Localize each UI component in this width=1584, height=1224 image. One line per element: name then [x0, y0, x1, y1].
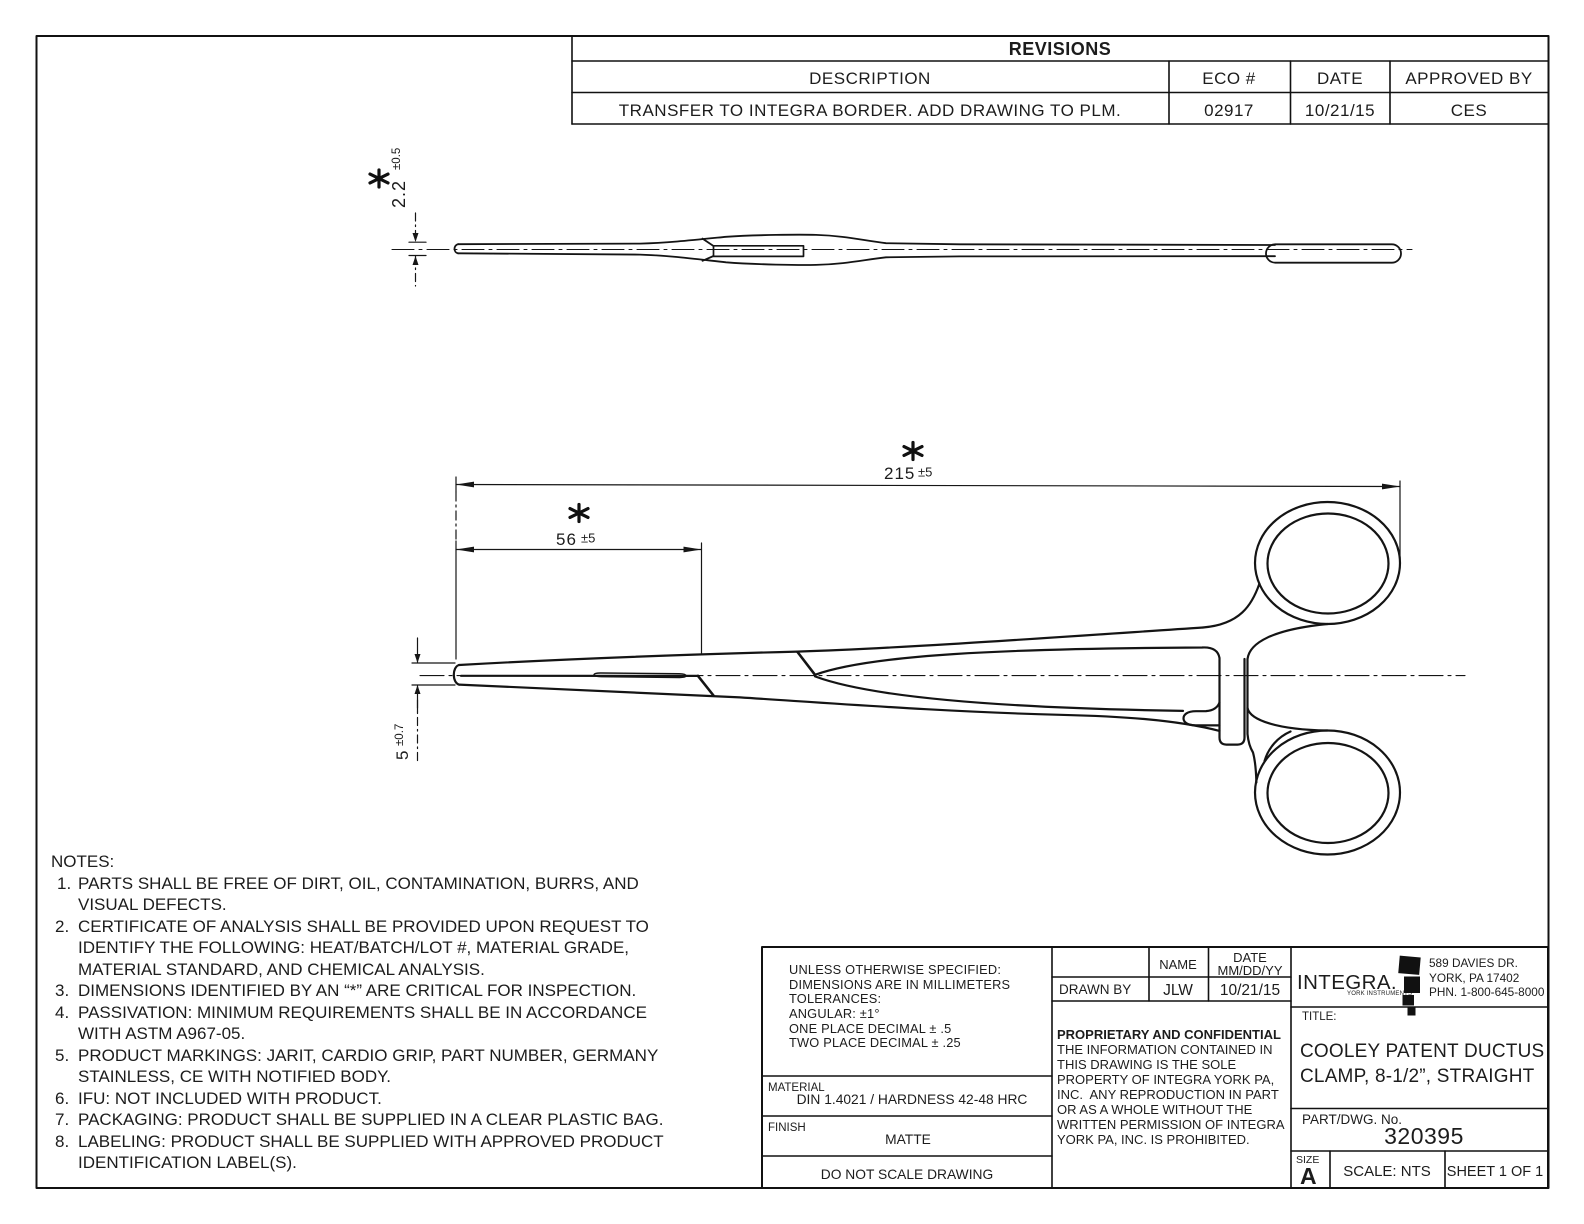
svg-text:MM/DD/YY: MM/DD/YY [1218, 963, 1283, 978]
svg-text:ONE PLACE DECIMAL ± .5: ONE PLACE DECIMAL ± .5 [789, 1021, 951, 1036]
svg-text:DO NOT SCALE DRAWING: DO NOT SCALE DRAWING [821, 1167, 993, 1182]
svg-text:MATTE: MATTE [885, 1132, 931, 1147]
svg-text:INC. ANY REPRODUCTION IN PART: INC. ANY REPRODUCTION IN PART [1057, 1087, 1279, 1102]
svg-text:DRAWN BY: DRAWN BY [1059, 982, 1131, 997]
svg-text:10/21/15: 10/21/15 [1220, 982, 1280, 999]
svg-text:±5: ±5 [918, 465, 932, 480]
svg-text:A: A [1300, 1163, 1317, 1189]
svg-text:8.: 8. [55, 1132, 69, 1151]
svg-text:SHEET 1 OF 1: SHEET 1 OF 1 [1447, 1164, 1543, 1180]
svg-text:DIN 1.4021 / HARDNESS 42-48 HR: DIN 1.4021 / HARDNESS 42-48 HRC [797, 1092, 1028, 1107]
svg-text:OR AS A WHOLE WITHOUT THE: OR AS A WHOLE WITHOUT THE [1057, 1102, 1253, 1117]
svg-text:PASSIVATION: MINIMUM REQUIREME: PASSIVATION: MINIMUM REQUIREMENTS SHALL … [78, 1003, 647, 1022]
svg-text:ECO #: ECO # [1202, 69, 1256, 88]
svg-text:MATERIAL STANDARD, AND CHEMICA: MATERIAL STANDARD, AND CHEMICAL ANALYSIS… [78, 960, 485, 979]
svg-text:5.: 5. [55, 1046, 69, 1065]
svg-text:±0.7: ±0.7 [394, 724, 406, 746]
svg-text:6.: 6. [55, 1089, 69, 1108]
svg-text:PARTS SHALL BE FREE OF DIRT, O: PARTS SHALL BE FREE OF DIRT, OIL, CONTAM… [78, 874, 639, 893]
svg-text:WRITTEN PERMISSION OF INTEGRA: WRITTEN PERMISSION OF INTEGRA [1057, 1117, 1285, 1132]
svg-text:DIMENSIONS ARE IN MILLIMETERS: DIMENSIONS ARE IN MILLIMETERS [789, 977, 1010, 992]
svg-text:3.: 3. [55, 981, 69, 1000]
svg-text:CERTIFICATE OF ANALYSIS SHALL: CERTIFICATE OF ANALYSIS SHALL BE PROVIDE… [78, 917, 649, 936]
svg-text:56: 56 [556, 530, 577, 549]
svg-text:THIS DRAWING IS THE SOLE: THIS DRAWING IS THE SOLE [1057, 1057, 1236, 1072]
svg-text:IDENTIFY THE FOLLOWING: HEAT/B: IDENTIFY THE FOLLOWING: HEAT/BATCH/LOT #… [78, 938, 629, 957]
svg-text:CLAMP, 8-1/2”, STRAIGHT: CLAMP, 8-1/2”, STRAIGHT [1300, 1066, 1535, 1087]
svg-text:YORK, PA 17402: YORK, PA 17402 [1429, 971, 1519, 985]
svg-text:1.: 1. [57, 874, 71, 893]
svg-text:JLW: JLW [1163, 982, 1193, 999]
svg-text:PRODUCT MARKINGS: JARIT, CARDI: PRODUCT MARKINGS: JARIT, CARDIO GRIP, PA… [78, 1046, 658, 1065]
svg-text:NAME: NAME [1159, 957, 1197, 972]
svg-text:±5: ±5 [581, 531, 595, 546]
svg-text:REVISIONS: REVISIONS [1009, 39, 1112, 59]
svg-text:APPROVED BY: APPROVED BY [1405, 69, 1532, 88]
svg-text:PROPERTY OF INTEGRA YORK PA,: PROPERTY OF INTEGRA YORK PA, [1057, 1072, 1274, 1087]
svg-text:UNLESS OTHERWISE SPECIFIED:: UNLESS OTHERWISE SPECIFIED: [789, 962, 1001, 977]
svg-text:5: 5 [393, 750, 412, 760]
svg-text:LABELING: PRODUCT SHALL BE SUP: LABELING: PRODUCT SHALL BE SUPPLIED WITH… [78, 1132, 664, 1151]
svg-text:YORK PA, INC. IS PROHIBITED.: YORK PA, INC. IS PROHIBITED. [1057, 1132, 1250, 1147]
svg-text:DATE: DATE [1317, 69, 1363, 88]
svg-text:THE INFORMATION CONTAINED IN: THE INFORMATION CONTAINED IN [1057, 1042, 1272, 1057]
svg-text:TITLE:: TITLE: [1302, 1011, 1337, 1023]
svg-text:215: 215 [884, 464, 915, 483]
svg-text:YORK INSTRUMENTS: YORK INSTRUMENTS [1347, 991, 1412, 997]
svg-text:ANGULAR: ±1°: ANGULAR: ±1° [789, 1006, 880, 1021]
svg-text:7.: 7. [55, 1110, 69, 1129]
svg-text:IDENTIFICATION LABEL(S).: IDENTIFICATION LABEL(S). [78, 1153, 297, 1172]
svg-text:TOLERANCES:: TOLERANCES: [789, 991, 881, 1006]
svg-text:WITH ASTM A967-05.: WITH ASTM A967-05. [78, 1024, 245, 1043]
svg-text:320395: 320395 [1384, 1123, 1464, 1149]
svg-text:NOTES:: NOTES: [51, 852, 114, 871]
svg-text:589 DAVIES DR.: 589 DAVIES DR. [1429, 956, 1518, 970]
svg-text:PHN. 1-800-645-8000: PHN. 1-800-645-8000 [1429, 985, 1545, 999]
svg-text:FINISH: FINISH [768, 1122, 806, 1134]
svg-text:DIMENSIONS IDENTIFIED BY AN “*: DIMENSIONS IDENTIFIED BY AN “*” ARE CRIT… [78, 981, 636, 1000]
svg-text:10/21/15: 10/21/15 [1305, 101, 1375, 120]
svg-text:CES: CES [1451, 101, 1487, 120]
svg-text:TWO PLACE DECIMAL ± .25: TWO PLACE DECIMAL ± .25 [789, 1035, 961, 1050]
svg-text:4.: 4. [55, 1003, 69, 1022]
svg-text:VISUAL DEFECTS.: VISUAL DEFECTS. [78, 895, 227, 914]
svg-text:±0.5: ±0.5 [391, 148, 403, 170]
svg-text:DESCRIPTION: DESCRIPTION [809, 69, 931, 88]
svg-text:SCALE: NTS: SCALE: NTS [1343, 1163, 1431, 1180]
svg-text:COOLEY PATENT DUCTUS: COOLEY PATENT DUCTUS [1300, 1041, 1544, 1062]
svg-text:02917: 02917 [1204, 101, 1254, 120]
svg-text:2.: 2. [55, 917, 69, 936]
svg-text:PROPRIETARY AND CONFIDENTIAL: PROPRIETARY AND CONFIDENTIAL [1057, 1027, 1281, 1042]
svg-text:2.2: 2.2 [389, 180, 409, 208]
svg-text:IFU: NOT INCLUDED WITH PRODUCT: IFU: NOT INCLUDED WITH PRODUCT. [78, 1089, 382, 1108]
svg-text:STAINLESS, CE WITH NOTIFIED BO: STAINLESS, CE WITH NOTIFIED BODY. [78, 1067, 391, 1086]
svg-text:TRANSFER TO INTEGRA BORDER. AD: TRANSFER TO INTEGRA BORDER. ADD DRAWING … [619, 101, 1121, 120]
svg-text:PACKAGING: PRODUCT SHALL BE SU: PACKAGING: PRODUCT SHALL BE SUPPLIED IN … [78, 1110, 663, 1129]
